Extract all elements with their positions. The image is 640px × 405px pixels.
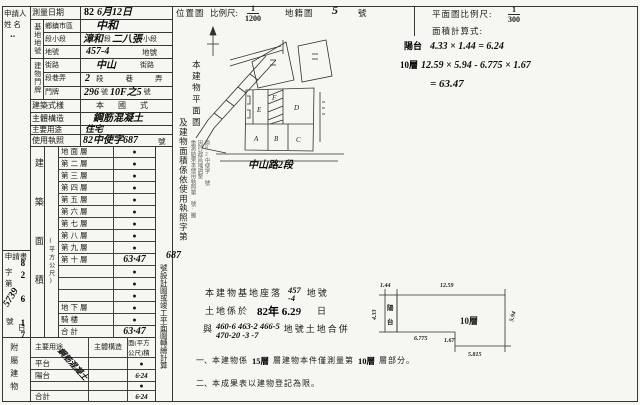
plan-scale-fraction: 1300 [508, 5, 520, 24]
table-row: 第六層● [58, 206, 155, 218]
floor-value: ● [114, 146, 155, 157]
application-no-suffix: 號 [6, 318, 14, 326]
structure-label: 主體構造 [32, 115, 77, 124]
calc-line-floor: 10層 12.59 × 5.94 - 6.775 × 1.67 [400, 60, 531, 71]
annex-structure [89, 391, 128, 402]
floor-value: ● [114, 230, 155, 241]
ground-line3-suffix: 地號土地合併 [284, 325, 350, 335]
footnote1-mid: 層建物本件僅測量第 [273, 357, 354, 366]
table-row: 第七層● [58, 218, 155, 230]
applicant-mark: ‥ [10, 31, 15, 40]
grid-line [43, 19, 44, 99]
floor-plan-sketch: 1.44 12.59 4.33 5.94 6.775 1.67 5.815 10… [368, 276, 568, 364]
parcel-label-f: F [271, 94, 277, 102]
grid-line [414, 6, 415, 36]
calc-balcony-formula: 4.33 × 1.44 = 6.24 [430, 41, 504, 52]
floor-label: 合計 [58, 326, 114, 337]
road-name-label: 中山路2段 [248, 160, 293, 171]
table-row: 騎樓● [58, 314, 155, 326]
table-row: 地面層● [58, 146, 155, 158]
applicant-name-label: 姓 名 [4, 21, 28, 29]
floor-label: 第六層 [58, 206, 114, 217]
plate-number: 296 [84, 87, 99, 98]
dim-bottom-right: 5.815 [468, 352, 482, 358]
survey-date-monthday: 6月12日 [97, 7, 132, 18]
style-value: 本國式 [96, 102, 162, 111]
lane-value: 2 [85, 73, 90, 84]
calc-line-balcony: 陽台 4.33 × 1.44 = 6.24 [404, 41, 504, 52]
table-row: 合計 6·24 [30, 391, 155, 402]
ground-line3-text: 與 [203, 325, 212, 335]
table-row: 第三層● [58, 170, 155, 182]
floor-label [58, 278, 114, 289]
parcel-label-b: B [274, 135, 279, 143]
lot-label: 地號 [45, 49, 78, 57]
license-label: 使用執照 [32, 137, 77, 146]
table-row: ● [58, 278, 155, 290]
floor-value: ● [114, 218, 155, 229]
street-label: 街路 [45, 62, 78, 70]
table-row: 第八層● [58, 230, 155, 242]
floor-table-sublabel: (平方公尺) [47, 238, 54, 286]
floor-value: ● [114, 278, 155, 289]
balcony-stamp-bottom: 台 [387, 317, 394, 326]
annex-use [30, 382, 89, 390]
balcony-stamp-top: 陽 [387, 303, 394, 312]
footnote-2: 二、 本成果表以建物登記為限。 [196, 380, 320, 389]
floor-value-10f: 63·47 [114, 254, 155, 265]
table-row: 第九層● [58, 242, 155, 254]
floor-value: ● [114, 242, 155, 253]
grid-line [155, 146, 156, 402]
ground-line1-text: 本建物基地座落 [205, 289, 282, 299]
location-map-label: 位置圖 [176, 9, 205, 18]
lot-suffix: 地號 [142, 49, 157, 57]
license-value: 82中使字687 [83, 135, 138, 146]
ground-line1-suffix: 地號 [307, 289, 329, 299]
location-scale-label: 比例尺: [210, 9, 238, 18]
use-value: 住宅 [85, 125, 103, 135]
annex-total-value: 6·24 [128, 391, 155, 402]
ground-lot-bottom: -4 [288, 294, 301, 302]
section-label: 段小段 [45, 36, 78, 44]
section-hw-name: 漳和 [83, 34, 103, 45]
floor-label: 地面層 [58, 146, 114, 157]
grid-line [43, 72, 172, 73]
table-row: 第五層● [58, 194, 155, 206]
table-row: 合計63·47 [58, 326, 155, 337]
parcel-label-d: D [293, 104, 299, 112]
ground-line-3: 與 460-6 463-2 466-5 470-20 -3 -7 地號土地合併 [203, 322, 350, 341]
section-print-duan: 段 [104, 36, 111, 44]
floor-label: 地下層 [58, 302, 114, 313]
floor-value: ● [114, 266, 155, 277]
plate-floor-no: 10F之5 [110, 87, 142, 98]
parcel-label-c: C [296, 136, 301, 144]
footnote1-bullet: 一、 [196, 357, 212, 366]
floor-table-label: 建築面積 [33, 158, 43, 314]
applicant-label: 申請人 [4, 10, 29, 18]
subsection-print-duan: 小段 [143, 36, 157, 44]
parcel-label-e: E [256, 106, 262, 114]
floor-label: 騎樓 [58, 314, 114, 325]
annex-header-structure: 主體構造 [89, 337, 128, 357]
balcony-outline [385, 295, 397, 332]
dim-notch: 1.67 [444, 338, 456, 344]
dim-top: 12.59 [440, 283, 454, 289]
calc-balcony-prefix: 陽台 [404, 42, 422, 52]
district-value: 中和 [96, 20, 118, 32]
cadastral-map-label: 地籍圖 [285, 9, 314, 18]
table-row: 平台 ● [30, 358, 155, 370]
street-value: 中山 [96, 60, 116, 71]
section-value: 漳和 段 二八張 小段 [83, 34, 157, 45]
footnote2-text: 本成果表以建物登記為限。 [212, 380, 320, 389]
plate-hao: 號 [101, 89, 108, 97]
building-survey-form: 申請人 姓 名 ‥ 申請書 字第 5739 號 82 6 17 日 附屬建物 測… [0, 0, 640, 405]
grid-line [2, 250, 30, 251]
footnote1-pre: 本建物係 [212, 357, 248, 366]
location-map-sketch: E F D A B C [186, 22, 412, 187]
scale-numerator: 1 [247, 4, 259, 14]
license-suffix: 號 [158, 138, 166, 146]
grid-line [172, 6, 173, 402]
calc-floor-formula: 12.59 × 5.94 - 6.775 × 1.67 [421, 60, 531, 71]
floor-value: ● [114, 182, 155, 193]
annex-header-row: 主要用途 主體構造 面(平方公尺)積 [30, 337, 155, 358]
floor-value: ● [114, 206, 155, 217]
floor-value: ● [114, 194, 155, 205]
vertical-note-col3: 號設計圖或竣工平面圖轉繪計算 [159, 264, 167, 369]
annex-header-area: 面(平方公尺)積 [128, 337, 155, 357]
border-left [2, 6, 3, 402]
floor-label: 第九層 [58, 242, 114, 253]
table-row: 第二層● [58, 158, 155, 170]
grid-line [30, 99, 172, 100]
use-label: 主要用途 [32, 126, 77, 134]
floor-label: 第十層 [58, 254, 114, 265]
annex-area: ● [128, 358, 155, 369]
location-scale-fraction: 11200 [245, 4, 261, 23]
grid-line [43, 32, 172, 33]
floor-label: 第八層 [58, 230, 114, 241]
floor-value: ● [114, 314, 155, 325]
border-right [637, 6, 638, 402]
ground-line2-suffix: 日 [317, 307, 326, 317]
floor-label: 第五層 [58, 194, 114, 205]
table-row: ● [58, 290, 155, 302]
footnote1-stamp-15f: 15層 [252, 357, 269, 366]
ground-merge-date: 82年 6.2 [257, 306, 296, 318]
district-label: 鄉鎮市區 [45, 23, 78, 31]
table-row: 陽台 6·24 [30, 370, 155, 382]
grid-line [44, 146, 45, 337]
dim-balcony-width: 1.44 [380, 283, 391, 289]
style-label: 建築式樣 [32, 102, 77, 111]
floor-area-table: 地面層● 第二層● 第三層● 第四層● 第五層● 第六層● 第七層● 第八層● … [58, 146, 155, 337]
table-row: 第十層63·47 [58, 254, 155, 266]
table-row: ● [58, 266, 155, 278]
floor-label: 第七層 [58, 218, 114, 229]
ground-line-1: 本建物基地座落 457 -4 地號 [205, 286, 329, 302]
structure-value: 鋼筋混凝土 [93, 113, 143, 124]
vertical-note-license-no: 687 [166, 250, 181, 261]
footnote2-bullet: 二、 [196, 380, 212, 389]
annex-total-label: 合計 [30, 391, 89, 402]
compass-arrow [210, 27, 216, 35]
floor-total-value: 63·47 [114, 326, 155, 337]
door-group-label: 建物門牌 [33, 62, 41, 94]
plate-value: 296 號 10F之5 號 [84, 87, 151, 98]
survey-date-year: 82 [84, 7, 94, 18]
ground-merged-lots: 460-6 463-2 466-5 470-20 -3 -7 [216, 322, 280, 341]
floor-value: ● [114, 170, 155, 181]
table-row: 地下層● [58, 302, 155, 314]
dim-left: 4.33 [372, 310, 378, 322]
plate-hao-suffix: 號 [144, 89, 151, 97]
merged-lots-row2: 470-20 -3 -7 [216, 331, 280, 340]
ground-lot-number: 457 -4 [288, 286, 301, 302]
annex-area-balcony: 6·24 [128, 370, 155, 381]
table-row: ● [30, 382, 155, 391]
annex-section-label: 附屬建物 [9, 343, 18, 395]
floor-value: ● [114, 158, 155, 169]
subsection-hw-name: 二八張 [112, 34, 142, 45]
cadastral-map-no: 5 [332, 4, 338, 17]
area-calc-label: 面積計算式: [432, 27, 483, 36]
lot-value: 457-4 [86, 46, 109, 57]
floor-value: ● [114, 290, 155, 301]
application-date-suffix: 日 [18, 324, 26, 332]
lane-label: 段巷弄 [45, 75, 78, 83]
plan-scale-numerator: 1 [508, 5, 520, 15]
annex-area: ● [128, 382, 155, 390]
annex-structure [89, 358, 128, 369]
floor-label: 第三層 [58, 170, 114, 181]
street-suffix: 街路 [140, 62, 166, 70]
annex-structure [89, 382, 128, 390]
cadastral-map-no-suffix: 號 [358, 9, 367, 18]
calc-floor-prefix: 10層 [400, 61, 418, 71]
calc-result: = 63.47 [430, 78, 464, 90]
ground-line-2: 土地係於 82年 6.2 9 日 [205, 306, 326, 318]
floor-label: 第二層 [58, 158, 114, 169]
floor-label [58, 266, 114, 277]
plan-scale-label: 平面圖比例尺: [432, 10, 492, 19]
ground-merge-date-day: 9 [296, 306, 302, 318]
floor-label [58, 290, 114, 301]
parcel-label-a: A [253, 135, 259, 143]
dim-bottom-left: 6.775 [414, 336, 428, 342]
annex-structure [89, 370, 128, 381]
survey-date-label: 測量日期 [32, 9, 77, 18]
lane-suffix: 段巷弄 [96, 75, 185, 83]
dim-right: 5.94 [509, 311, 518, 323]
site-group-label: 基地地號 [33, 23, 41, 55]
plate-label: 門牌 [45, 89, 78, 97]
table-row: 第四層● [58, 182, 155, 194]
grid-line [30, 58, 172, 59]
plan-scale-denominator: 300 [508, 15, 520, 24]
survey-date-value: 82 6月12日 [84, 7, 170, 18]
ground-line2-text: 土地係於 [205, 307, 249, 317]
floor-value: ● [114, 302, 155, 313]
floor-label: 第四層 [58, 182, 114, 193]
annex-table: 主要用途 主體構造 面(平方公尺)積 平台 ● 陽台 6·24 ● 合計 6·2… [30, 337, 155, 401]
plan-floor-stamp: 10層 [460, 315, 478, 326]
